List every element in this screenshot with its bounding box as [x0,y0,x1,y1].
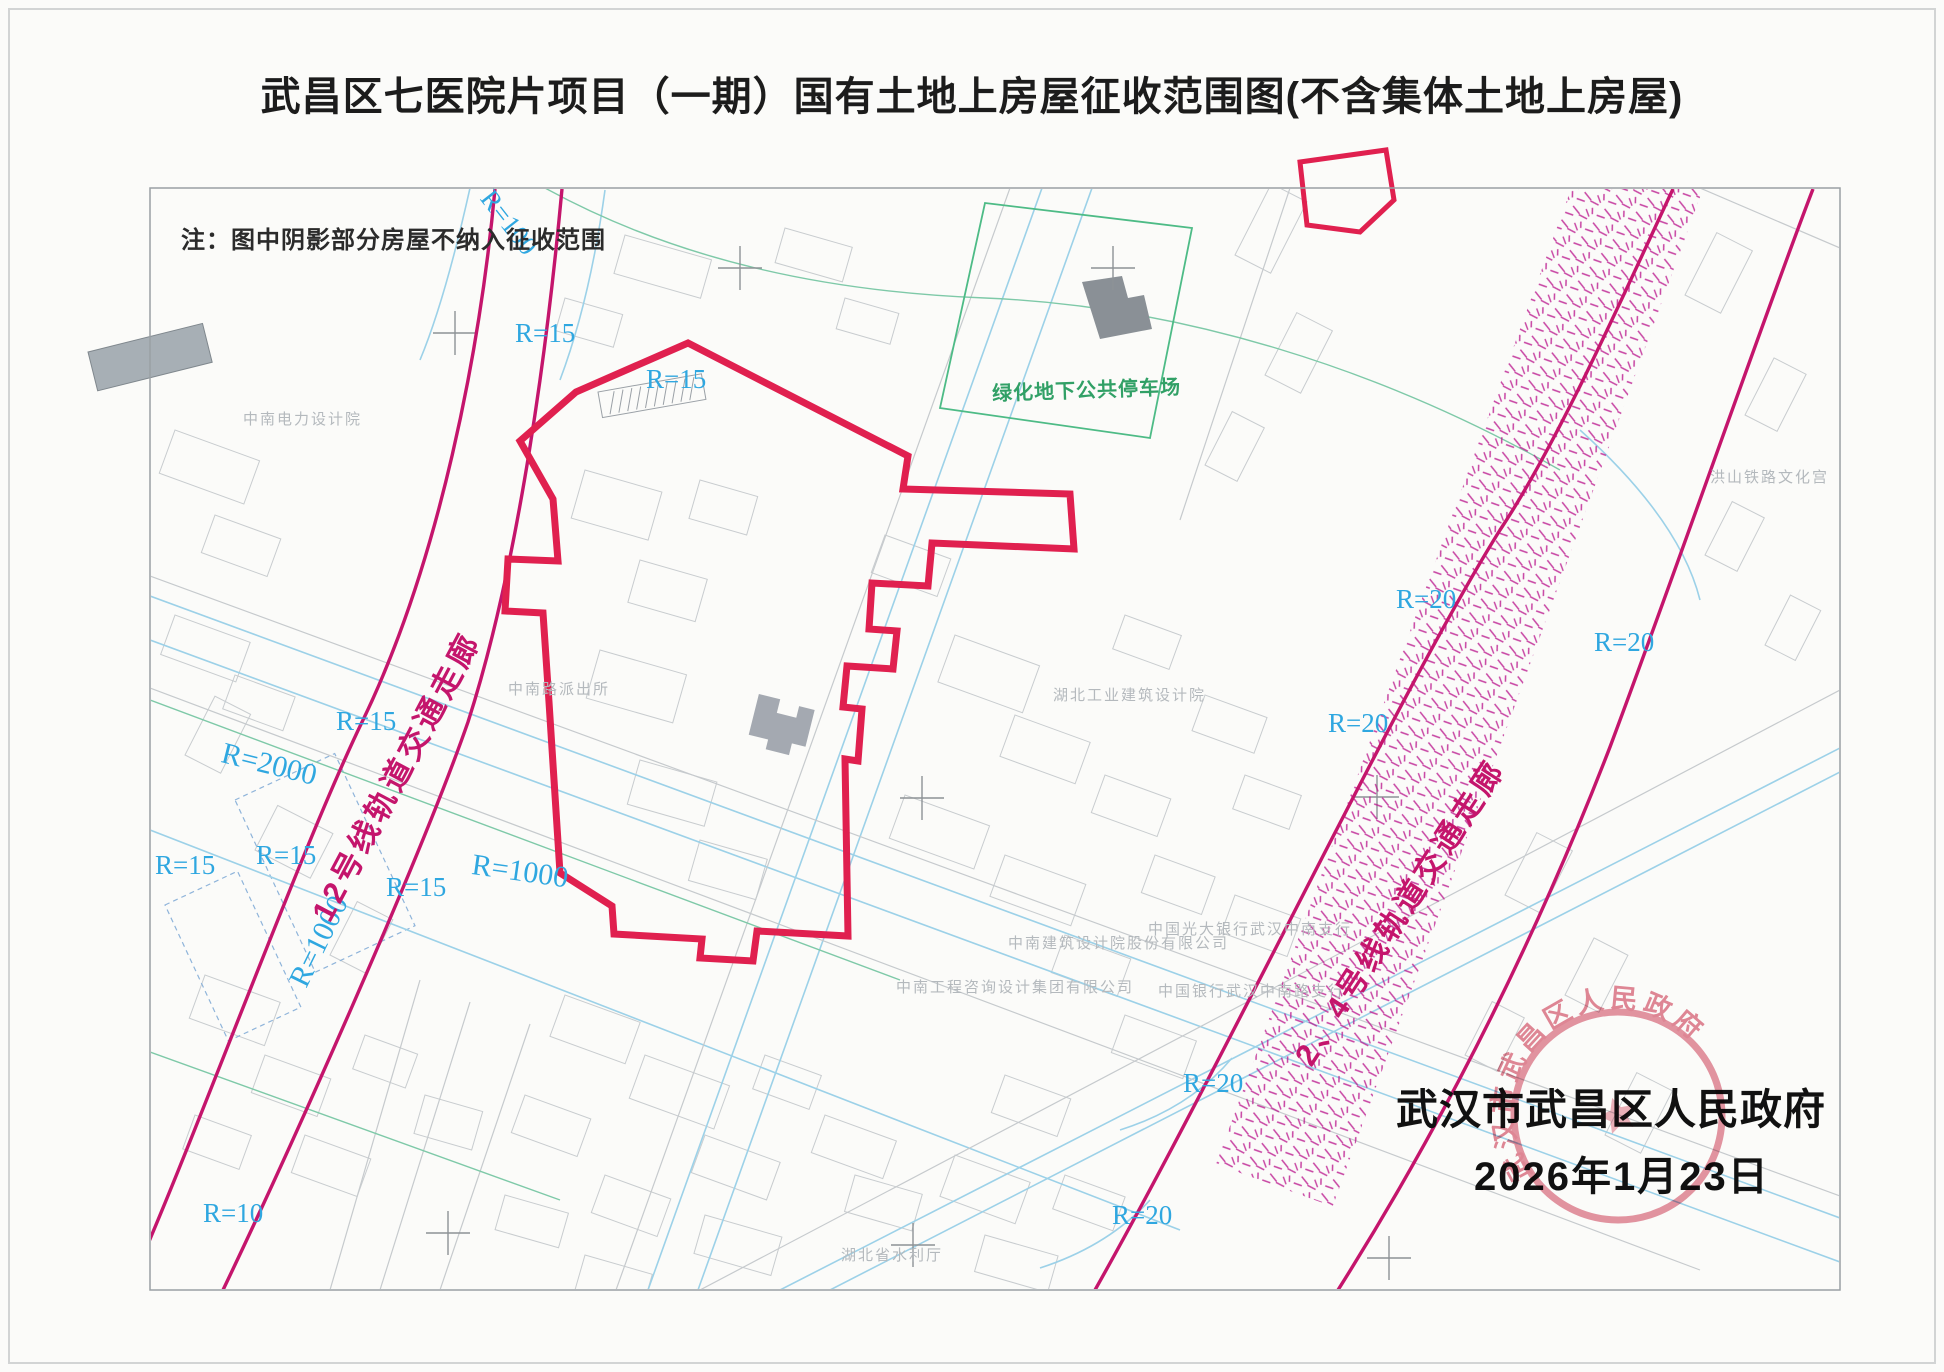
place-label-police: 中南路派出所 [508,678,610,699]
radius-label-r10: R=10 [203,1198,263,1229]
place-label-everbright-bank: 中国光大银行武汉中南支行 [1148,918,1352,939]
small-red-parcel [1300,150,1394,232]
gray-building-center [746,694,815,758]
radius-label-r15: R=15 [336,706,396,737]
gray-building-topright [1082,276,1152,339]
map-note: 注：图中阴影部分房屋不纳入征收范围 [181,220,606,255]
radius-label-r20: R=20 [1396,584,1456,615]
radius-label-r20: R=20 [1183,1068,1243,1099]
place-label-water-dept: 湖北省水利厅 [841,1244,943,1265]
expropriation-boundary [505,343,1074,961]
radius-label-r15: R=15 [155,850,215,881]
seal-star [1595,1092,1640,1136]
place-label-power-design: 中南电力设计院 [243,408,362,429]
radius-label-r20: R=20 [1328,708,1388,739]
radius-label-r15: R=15 [386,872,446,903]
radius-label-r15: R=15 [515,318,575,349]
official-seal: 武汉市武昌区人民政府 [1487,985,1749,1247]
radius-label-r15: R=15 [256,840,316,871]
place-label-hubei-industrial: 湖北工业建筑设计院 [1053,684,1206,705]
radius-label-r20: R=20 [1112,1200,1172,1231]
place-label-railway-palace: 洪山铁路文化宫 [1710,466,1829,487]
scanned-map-page: { "title": "武昌区七医院片项目（一期）国有土地上房屋征收范围图(不含… [0,0,1944,1372]
place-label-zn-engineering: 中南工程咨询设计集团有限公司 [896,976,1134,997]
radius-label-r20: R=20 [1594,627,1654,658]
radius-label-r15: R=15 [646,364,706,395]
